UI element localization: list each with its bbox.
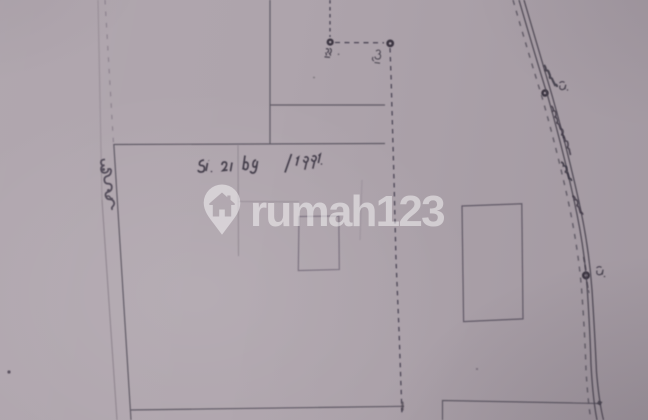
svg-text:rumah123: rumah123 — [250, 187, 444, 236]
